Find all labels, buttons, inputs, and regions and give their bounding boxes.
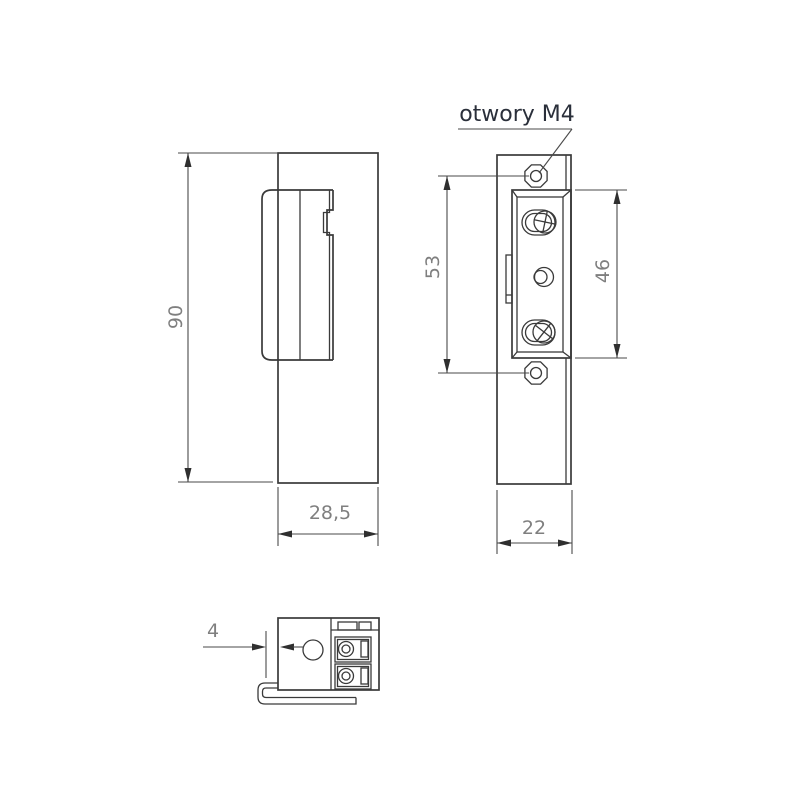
side-view-body-outline: [262, 190, 333, 360]
terminal-screw-inner: [342, 645, 350, 653]
arrowhead-down: [185, 468, 192, 482]
hole-bore: [531, 368, 542, 379]
bevel-edge: [563, 352, 571, 358]
bevel-edge: [563, 190, 571, 197]
terminal-tab: [359, 622, 371, 630]
strike-body: [506, 190, 571, 358]
arrowhead-left: [280, 644, 294, 651]
arrowhead-down: [614, 344, 621, 358]
bottom-view: [258, 618, 379, 704]
bottom-view-hole: [303, 640, 323, 660]
arrowhead-down: [444, 359, 451, 373]
terminal-tab: [338, 622, 357, 630]
arrowhead-up: [185, 153, 192, 167]
side-view: [262, 153, 378, 483]
arrowhead-right: [558, 540, 572, 547]
dimension-side-width: 28,5: [278, 487, 378, 546]
arrowhead-left: [278, 531, 292, 538]
terminal-screw-outer: [339, 642, 354, 657]
adjustment-screw-top: [522, 209, 558, 235]
bottom-view-body-outline: [278, 618, 379, 690]
terminal-wire-slot: [361, 668, 368, 684]
callout-leader-line: [539, 129, 572, 173]
side-view-faceplate-outline: [278, 153, 378, 483]
arrowhead-right: [252, 644, 266, 651]
arrowhead-left: [497, 540, 511, 547]
dim-value-46: 46: [592, 259, 614, 283]
adjustment-screw-bottom: [522, 317, 559, 348]
wire-terminal-1: [335, 637, 371, 662]
dimension-overall-height: 90: [165, 153, 278, 482]
drawing-svg: 90 28,5: [0, 0, 800, 801]
callout-label: otwory M4: [459, 102, 575, 127]
technical-drawing-canvas: 90 28,5: [0, 0, 800, 801]
dimension-lip-offset: 4: [203, 620, 304, 678]
dim-value-22: 22: [522, 517, 546, 539]
dim-value-90: 90: [165, 305, 187, 329]
arrowhead-up: [614, 190, 621, 204]
arrowhead-right: [364, 531, 378, 538]
latch-hole-inner: [534, 271, 547, 284]
latch-hole: [534, 268, 554, 287]
dimension-faceplate-width: 22: [497, 490, 572, 554]
dim-value-28-5: 28,5: [309, 502, 351, 524]
dim-value-53: 53: [422, 255, 444, 279]
terminal-wire-slot: [361, 641, 368, 657]
wire-terminal-2: [335, 664, 371, 689]
arrowhead-up: [444, 176, 451, 190]
dim-value-4: 4: [207, 620, 219, 642]
side-tab: [506, 255, 512, 303]
callout-holes-m4: otwory M4: [458, 102, 575, 173]
front-view: [497, 155, 571, 484]
latch-hole-outer: [535, 268, 554, 287]
terminal-screw-outer: [339, 669, 354, 684]
dimension-screw-spacing: 46: [575, 190, 627, 358]
terminal-screw-inner: [342, 672, 350, 680]
dimension-mount-hole-spacing: 53: [422, 176, 529, 373]
body-outer: [512, 190, 571, 358]
